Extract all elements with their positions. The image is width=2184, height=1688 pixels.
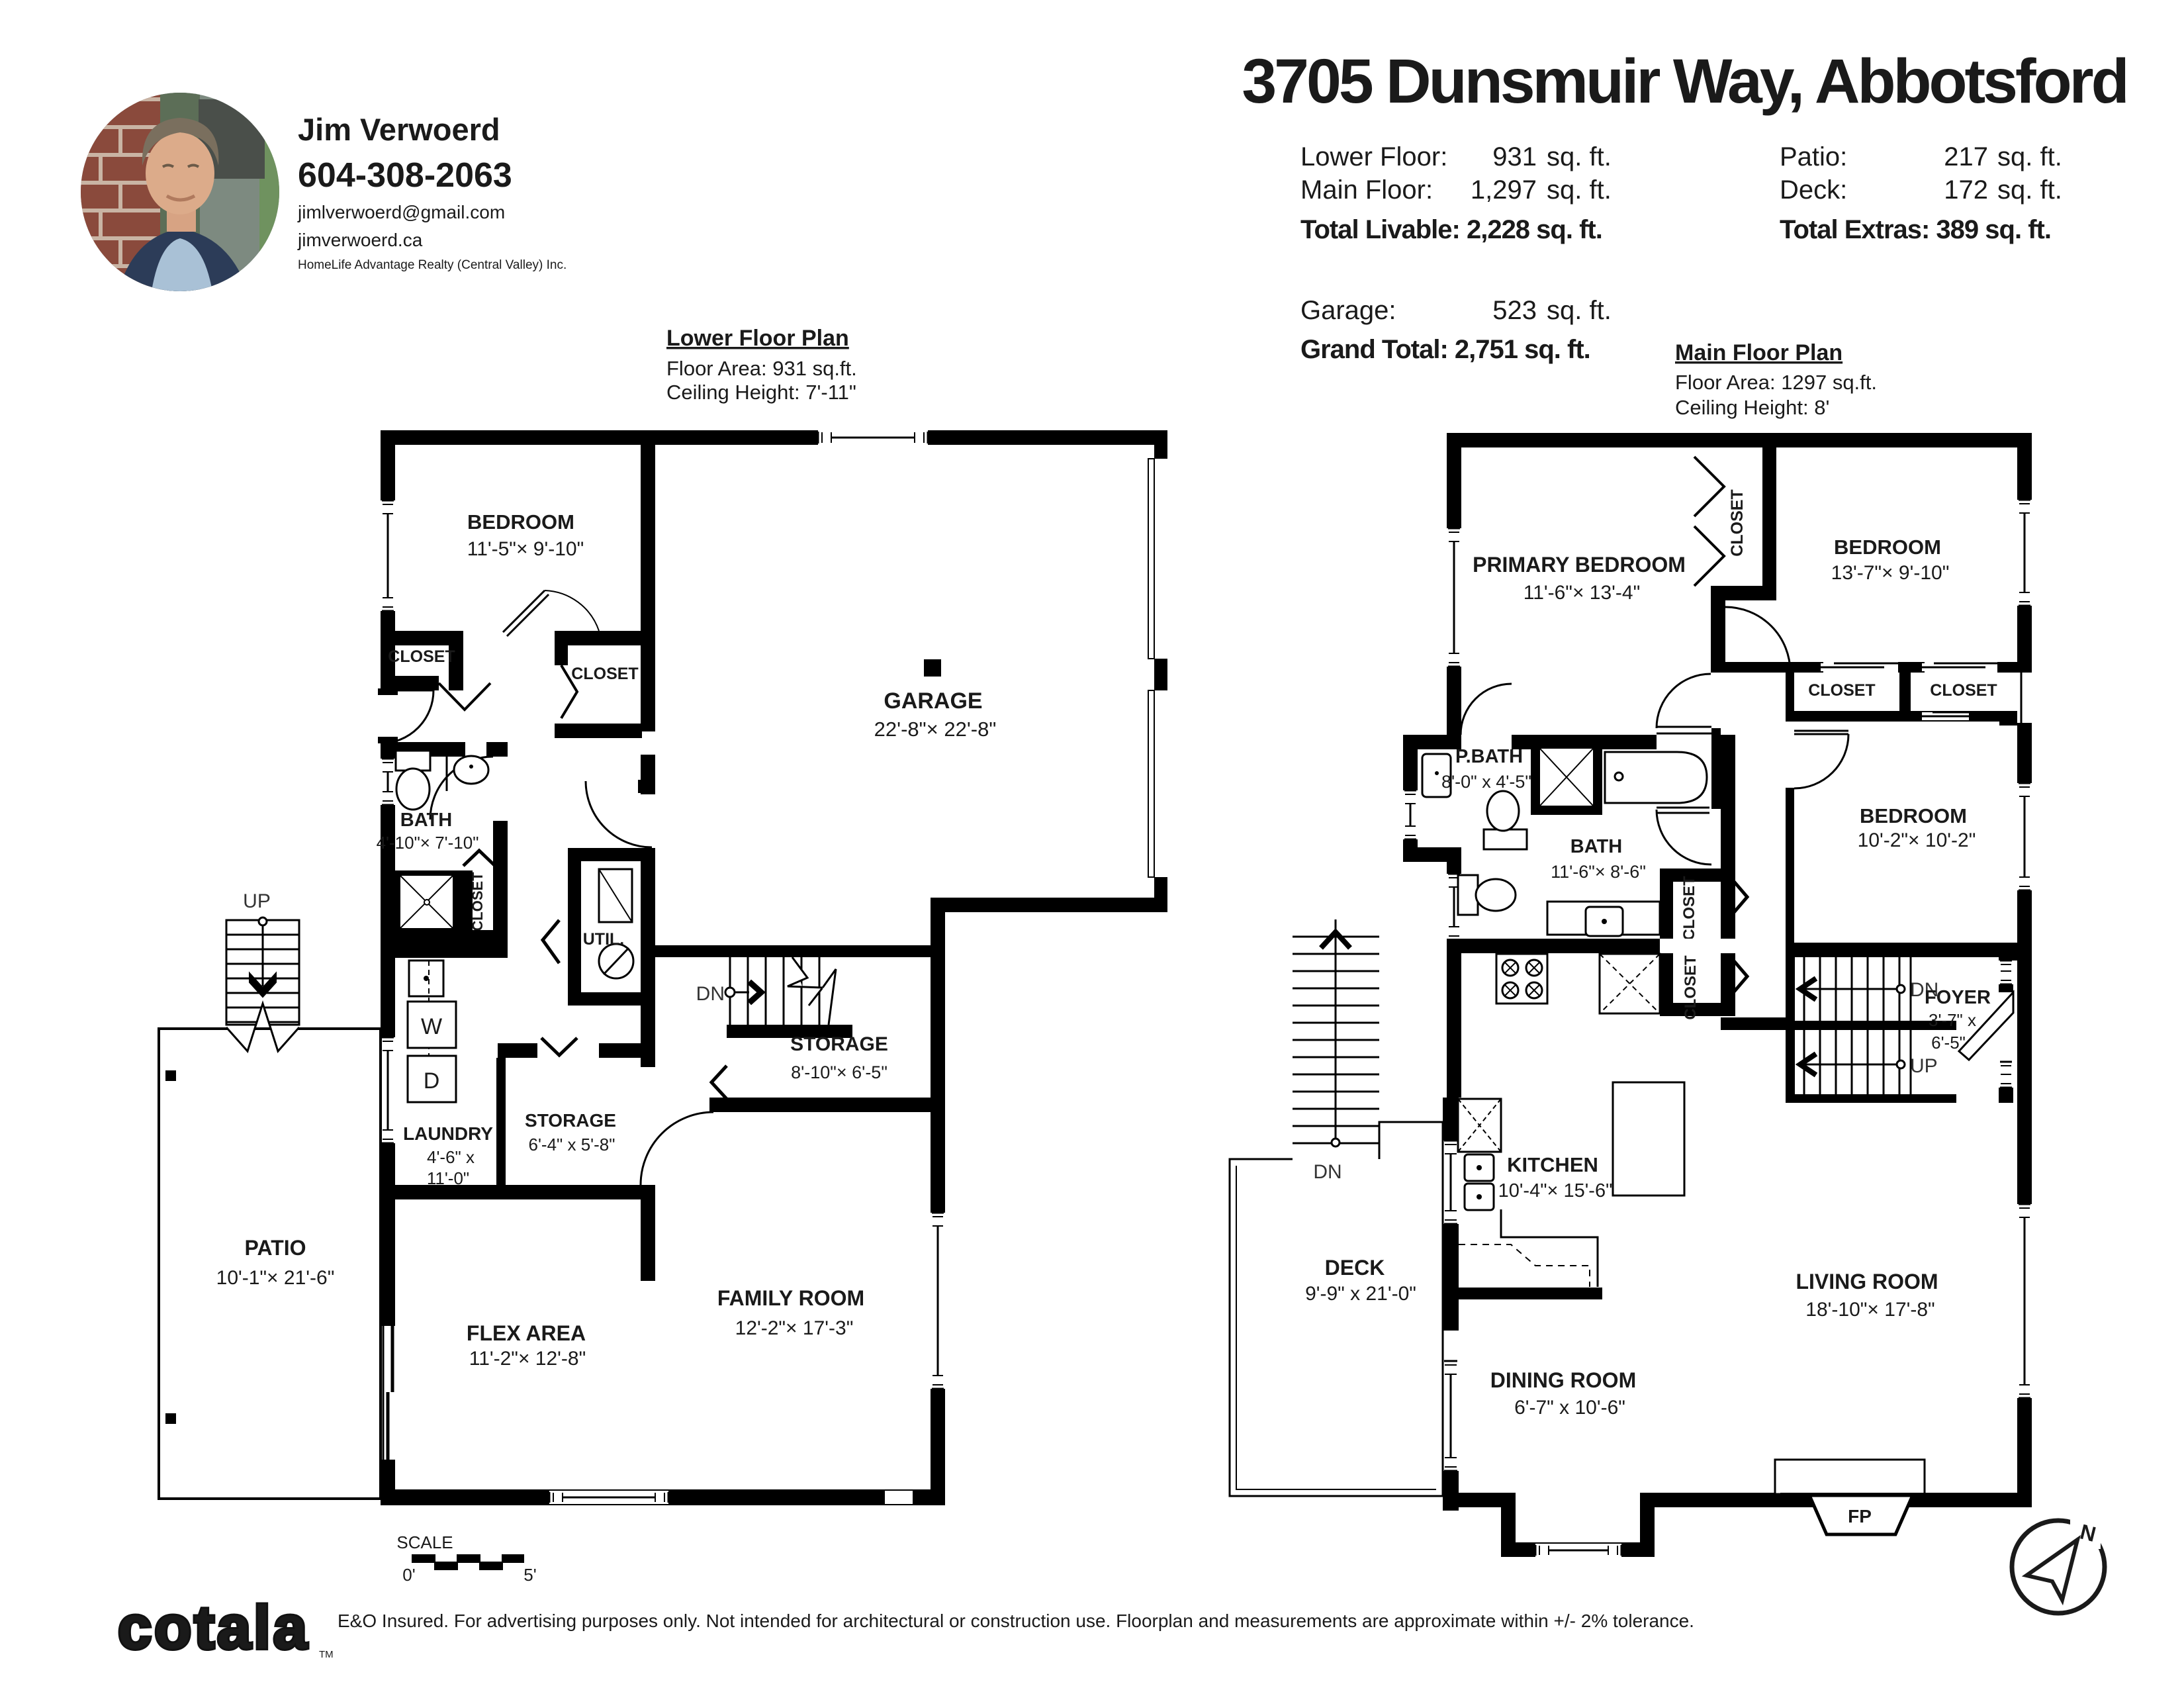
svg-text:11'-6"× 13'-4": 11'-6"× 13'-4" [1524,582,1640,604]
svg-text:CLOSET: CLOSET [1680,876,1698,941]
svg-text:Main Floor Plan: Main Floor Plan [1675,340,1843,365]
svg-text:SCALE: SCALE [396,1532,453,1552]
svg-text:KITCHEN: KITCHEN [1507,1153,1598,1176]
svg-text:8'-0" x 4'-5": 8'-0" x 4'-5" [1441,772,1531,792]
svg-text:PRIMARY BEDROOM: PRIMARY BEDROOM [1473,553,1686,577]
svg-text:GARAGE: GARAGE [884,688,982,714]
svg-text:4'-6" x: 4'-6" x [427,1147,475,1167]
svg-text:CLOSET: CLOSET [1728,489,1747,556]
svg-text:sq. ft.: sq. ft. [1547,142,1612,171]
svg-text:6'-4" x 5'-8": 6'-4" x 5'-8" [529,1135,615,1154]
svg-text:Total Livable: 2,228 sq. ft.: Total Livable: 2,228 sq. ft. [1300,215,1602,244]
svg-text:CLOSET: CLOSET [571,665,638,683]
svg-text:sq. ft.: sq. ft. [1997,142,2062,171]
svg-text:UTIL.: UTIL. [583,930,625,949]
svg-text:Main Floor:: Main Floor: [1300,175,1433,205]
svg-text:DN: DN [696,983,725,1005]
svg-text:523: 523 [1492,296,1537,325]
svg-text:CLOSET: CLOSET [1930,681,1997,700]
svg-text:W: W [421,1014,442,1039]
svg-text:11'-6"× 8'-6": 11'-6"× 8'-6" [1551,862,1646,882]
svg-text:172: 172 [1944,175,1988,205]
svg-text:TM: TM [319,1649,334,1660]
svg-text:FLEX AREA: FLEX AREA [467,1321,586,1345]
svg-text:10'-4"× 15'-6": 10'-4"× 15'-6" [1498,1180,1613,1201]
svg-text:12'-2"× 17'-3": 12'-2"× 17'-3" [735,1317,854,1339]
svg-text:sq. ft.: sq. ft. [1547,296,1612,325]
svg-text:10'-1"× 21'-6": 10'-1"× 21'-6" [216,1267,335,1289]
svg-text:STORAGE: STORAGE [790,1033,888,1055]
svg-text:BEDROOM: BEDROOM [1834,536,1941,559]
svg-text:217: 217 [1944,142,1988,171]
svg-text:CLOSET: CLOSET [1808,681,1875,700]
svg-text:jimlverwoerd@gmail.com: jimlverwoerd@gmail.com [297,202,505,222]
svg-text:11'-2"× 12'-8": 11'-2"× 12'-8" [469,1348,586,1370]
svg-text:Lower Floor Plan: Lower Floor Plan [666,326,849,351]
svg-text:Ceiling Height: 8': Ceiling Height: 8' [1675,396,1829,419]
svg-text:PATIO: PATIO [244,1236,306,1260]
svg-text:931: 931 [1492,142,1537,171]
svg-text:DN: DN [1313,1161,1342,1183]
svg-text:sq. ft.: sq. ft. [1997,175,2062,205]
svg-text:4'-10"× 7'-10": 4'-10"× 7'-10" [377,833,479,853]
svg-text:3'-7" x: 3'-7" x [1929,1010,1976,1030]
svg-text:13'-7"× 9'-10": 13'-7"× 9'-10" [1831,562,1950,584]
svg-text:Ceiling Height: 7'-11": Ceiling Height: 7'-11" [666,381,856,404]
svg-text:D: D [424,1068,440,1094]
svg-text:sq. ft.: sq. ft. [1547,175,1612,205]
svg-text:FP: FP [1848,1506,1872,1526]
svg-text:Jim Verwoerd: Jim Verwoerd [298,112,500,147]
svg-text:6'-5": 6'-5" [1931,1033,1966,1053]
svg-text:CLOSET: CLOSET [388,647,455,666]
svg-text:UP: UP [1910,1055,1938,1077]
svg-text:Lower Floor:: Lower Floor: [1300,142,1447,171]
svg-text:FAMILY ROOM: FAMILY ROOM [717,1286,864,1310]
svg-text:LAUNDRY: LAUNDRY [403,1123,493,1144]
svg-text:jimverwoerd.ca: jimverwoerd.ca [297,230,423,250]
svg-text:Total Extras: 389 sq. ft.: Total Extras: 389 sq. ft. [1780,215,2051,244]
svg-text:P.BATH: P.BATH [1455,746,1523,767]
svg-text:0': 0' [402,1565,415,1585]
svg-text:6'-7" x 10'-6": 6'-7" x 10'-6" [1514,1397,1625,1419]
svg-text:Patio:: Patio: [1780,142,1847,171]
svg-text:5': 5' [523,1565,536,1585]
svg-text:9'-9" x 21'-0": 9'-9" x 21'-0" [1305,1283,1416,1305]
svg-text:BATH: BATH [1570,836,1622,857]
svg-text:Garage:: Garage: [1300,296,1396,325]
svg-text:8'-10"× 6'-5": 8'-10"× 6'-5" [791,1062,887,1082]
svg-text:DINING ROOM: DINING ROOM [1490,1368,1636,1392]
svg-text:STORAGE: STORAGE [525,1110,616,1131]
svg-text:E&O Insured. For advertising p: E&O Insured. For advertising purposes on… [338,1611,1694,1631]
svg-text:11'-5"× 9'-10": 11'-5"× 9'-10" [467,538,584,560]
svg-text:Deck:: Deck: [1780,175,1847,205]
svg-text:CLOSET: CLOSET [1682,955,1700,1020]
svg-text:BEDROOM: BEDROOM [1860,804,1967,827]
svg-text:LIVING ROOM: LIVING ROOM [1796,1270,1938,1293]
svg-text:HomeLife Advantage Realty (Cen: HomeLife Advantage Realty (Central Valle… [298,258,567,272]
svg-text:cotala: cotala [118,1594,310,1662]
svg-text:UP: UP [243,890,271,912]
svg-text:Floor Area: 1297 sq.ft.: Floor Area: 1297 sq.ft. [1675,371,1877,394]
svg-text:CLOSET: CLOSET [469,872,486,931]
svg-text:22'-8"× 22'-8": 22'-8"× 22'-8" [874,718,997,741]
svg-text:BEDROOM: BEDROOM [467,510,574,534]
svg-text:Grand Total: 2,751 sq. ft.: Grand Total: 2,751 sq. ft. [1300,335,1590,364]
svg-text:DECK: DECK [1325,1256,1385,1280]
svg-text:Floor Area: 931 sq.ft.: Floor Area: 931 sq.ft. [666,357,857,380]
svg-text:1,297: 1,297 [1471,175,1537,205]
svg-text:18'-10"× 17'-8": 18'-10"× 17'-8" [1805,1299,1934,1321]
svg-text:FOYER: FOYER [1925,987,1991,1008]
svg-text:604-308-2063: 604-308-2063 [298,156,512,195]
svg-text:10'-2"× 10'-2": 10'-2"× 10'-2" [1858,829,1976,851]
svg-text:3705 Dunsmuir Way, Abbotsford: 3705 Dunsmuir Way, Abbotsford [1242,46,2126,117]
svg-text:BATH: BATH [400,810,452,831]
